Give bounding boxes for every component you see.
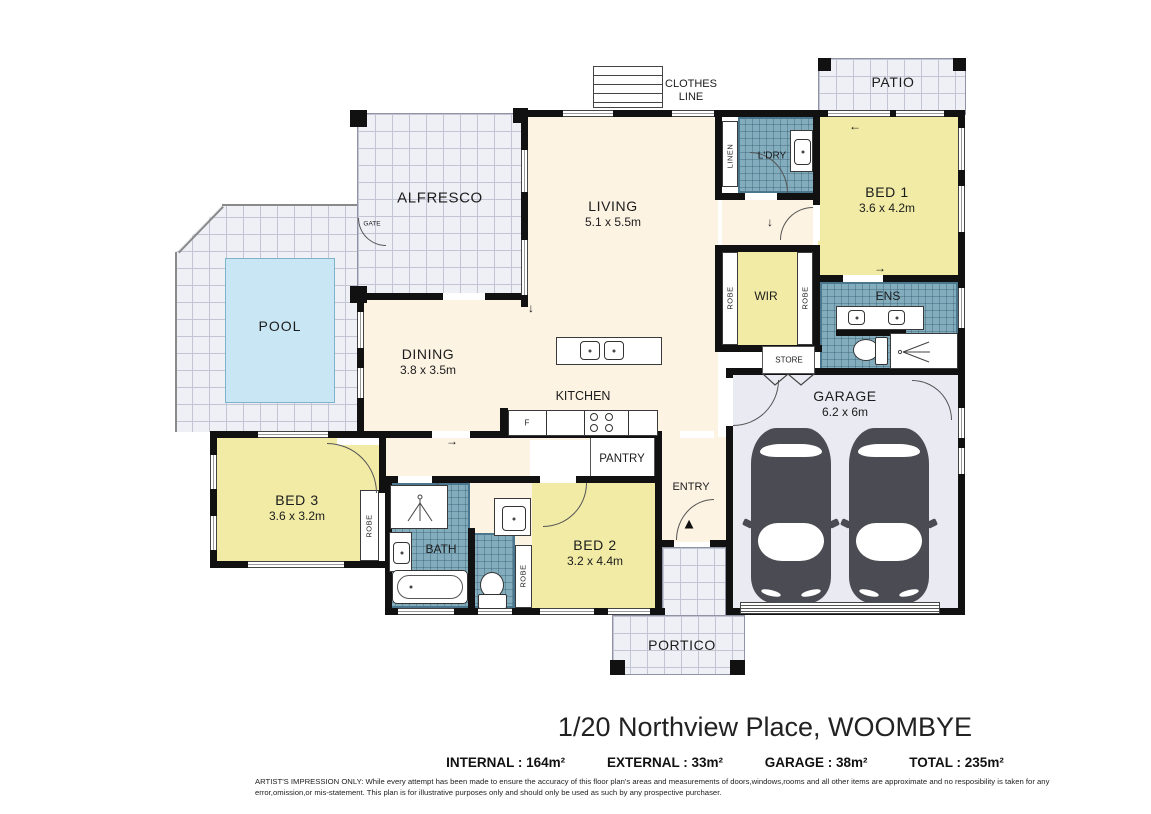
fridge-label: F [525,419,530,428]
bed1-dims: 3.6 x 4.2m [859,201,915,215]
patio-label: PATIO [872,74,915,90]
bed3-label: BED 3 [275,492,318,508]
window [958,128,965,170]
pantry-label: PANTRY [599,453,645,465]
bath-label: BATH [425,542,456,556]
wall [715,245,820,252]
garage-door [740,602,940,614]
stove-icon [590,413,598,421]
laundry-label: L'DRY [758,151,786,162]
door-opening [443,293,485,300]
slide-arrow-icon: ↓ [767,215,773,229]
pool-fence [222,204,357,206]
wall [715,110,722,200]
gate-label: GATE [363,221,380,228]
robe-label: ROBE [365,514,374,537]
sink-icon [580,341,600,360]
dining-dims: 3.8 x 3.5m [400,363,456,377]
entry-label: ENTRY [672,481,709,493]
bath-vanity [389,532,412,572]
internal-area: INTERNAL : 164m² [446,755,565,770]
wall [813,245,820,352]
wall [813,275,965,282]
stove-icon [590,424,598,432]
toilet-icon [478,572,506,610]
living-label: LIVING [588,198,638,214]
patio-post [818,58,831,71]
total-area: TOTAL : 235m² [909,755,1004,770]
bed2-dims: 3.2 x 4.4m [567,554,623,568]
window [210,516,217,550]
window [958,408,965,438]
garage-area: GARAGE : 38m² [765,755,868,770]
bed1-label: BED 1 [865,184,908,200]
pool-label: POOL [259,318,302,334]
alfresco-label: ALFRESCO [397,190,483,207]
stove-icon [605,424,613,432]
portico-neck [662,547,726,617]
slide-arrow-icon: ← [849,119,861,133]
bathtub-icon [392,570,468,604]
patio-post [953,58,966,71]
floorplan-canvas: ▲ ← → → ↓ ↓ PATIO CLOTHES LINE ALFRESCO … [0,0,1151,814]
robe-label: ROBE [519,564,528,587]
car-icon [849,428,929,603]
sliding-door [521,240,528,295]
pool-fence [175,252,177,432]
sliding-door [828,110,890,117]
bed3-dims: 3.6 x 3.2m [269,509,325,523]
sink-icon [888,310,905,325]
robe-label: ROBE [726,286,735,309]
ens-label: ENS [876,289,901,303]
kitchen-bench [508,410,658,436]
clothesline-icon [593,66,663,108]
window [958,288,965,328]
window [896,110,944,117]
door-opening [680,431,714,438]
wall [655,437,662,615]
robe-label: ROBE [801,286,810,309]
address-title: 1/20 Northview Place, WOOMBYE [420,712,1110,743]
alfresco-post [350,110,367,127]
window [608,608,650,615]
toilet-icon [853,337,891,363]
bath-shower [390,485,448,529]
sink-icon [604,341,624,360]
window [357,312,364,348]
window [521,150,528,192]
clothesline-label-2: LINE [679,91,703,103]
window [563,110,613,117]
linen-label: LINEN [726,144,735,169]
window [672,110,714,117]
store-label: STORE [775,356,802,365]
wir-label: WIR [754,289,777,303]
garage-label: GARAGE [813,388,877,404]
alfresco-area [357,113,525,300]
area-summary: INTERNAL : 164m² EXTERNAL : 33m² GARAGE … [330,755,1120,770]
basin-niche [494,498,531,536]
door-opening [813,205,820,241]
stove-icon [605,413,613,421]
window [210,455,217,489]
wall [813,110,820,207]
wall [500,408,508,437]
wall [715,245,722,352]
wall [662,540,674,547]
window [248,561,344,568]
window [357,368,364,398]
ens-shower [890,333,958,369]
door-opening [726,378,733,426]
window [258,431,328,438]
living-dims: 5.1 x 5.5m [585,215,641,229]
sink-icon [848,310,865,325]
bifold-door-icon [762,373,815,387]
door-opening [540,476,576,483]
portico-post [610,660,625,675]
car-icon [751,428,831,603]
slide-arrow-icon: → [874,261,886,275]
external-area: EXTERNAL : 33m² [607,755,723,770]
entry-arrow-icon: ▲ [682,516,697,533]
wall-corner [513,108,528,123]
portico-post [730,660,745,675]
window [540,608,594,615]
kitchen-label: KITCHEN [556,389,611,403]
bed2-label: BED 2 [573,537,616,553]
portico-label: PORTICO [648,637,716,653]
door-opening [745,193,777,200]
garage-dims: 6.2 x 6m [822,405,868,419]
door-opening [843,275,883,282]
door-opening [337,438,379,445]
door-opening [398,476,432,483]
disclaimer-text: ARTIST'S IMPRESSION ONLY: While every at… [255,776,1067,798]
clothesline-label-1: CLOTHES [665,78,717,90]
dining-label: DINING [402,346,455,362]
slide-arrow-icon: → [446,434,458,448]
window [958,448,965,474]
window [958,186,965,232]
slide-arrow-icon: ↓ [528,301,534,315]
wall [710,540,726,547]
laundry-tub-icon [790,130,813,172]
window [398,608,454,615]
wall [468,528,475,615]
